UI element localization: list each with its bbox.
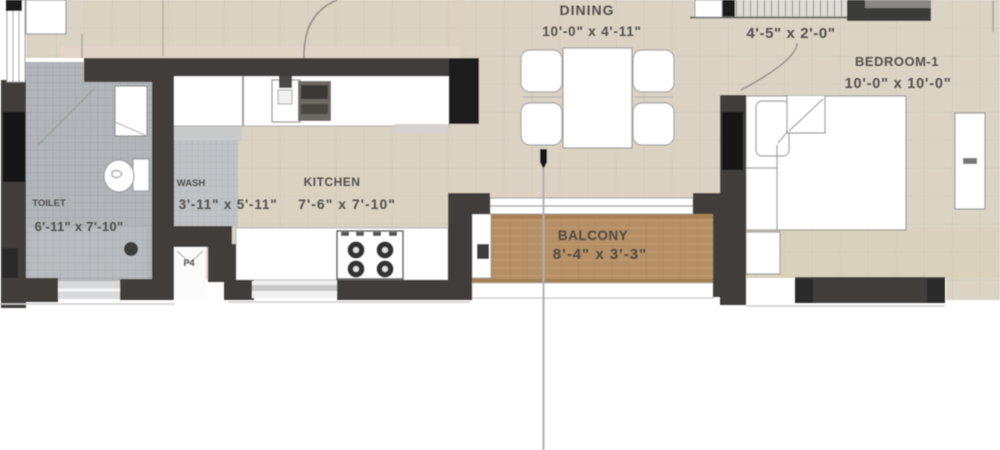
svg-text:DINING: DINING: [560, 2, 615, 18]
svg-text:10'-0" x 10'-0": 10'-0" x 10'-0": [845, 76, 952, 92]
svg-text:3'-11" x 5'-11": 3'-11" x 5'-11": [179, 197, 278, 212]
svg-text:TOILET: TOILET: [32, 198, 66, 209]
svg-text:WASH: WASH: [177, 178, 206, 189]
svg-text:BEDROOM-1: BEDROOM-1: [855, 54, 939, 69]
svg-text:10'-0" x 4'-11": 10'-0" x 4'-11": [542, 24, 642, 39]
svg-text:4'-5" x 2'-0": 4'-5" x 2'-0": [746, 25, 835, 42]
svg-text:7'-6" x 7'-10": 7'-6" x 7'-10": [298, 196, 396, 212]
svg-text:KITCHEN: KITCHEN: [304, 175, 361, 189]
svg-text:P4: P4: [183, 258, 194, 268]
svg-text:8'-4" x 3'-3": 8'-4" x 3'-3": [553, 246, 647, 263]
svg-text:6'-11" x 7'-10": 6'-11" x 7'-10": [35, 219, 124, 234]
svg-text:BALCONY: BALCONY: [558, 228, 628, 243]
